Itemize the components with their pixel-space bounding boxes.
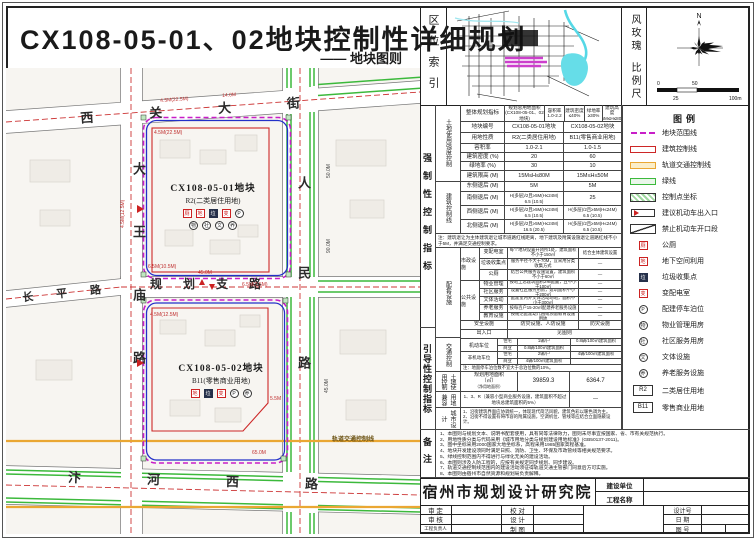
urban-design-group-label: 城市设计 (436, 408, 461, 430)
index-lake (561, 53, 588, 86)
wind-rose-scale-cell: N (647, 6, 750, 105)
table-row: 西侧退后 (M) H(多层)/2且≥5M(H≤24M) 6.5 (10.5) H… (461, 206, 622, 220)
cell: — (579, 281, 622, 289)
table-row: 文体活动 配建室内外文体活动场地，面积不小于300㎡ — (480, 297, 622, 305)
cell: 1、3、R（兼容小型商业服务设施，建筑面积不超过地块总建筑面积的5%） (461, 392, 570, 408)
table-row: 垃圾收集点 服务半径不大于70M，宜采用分类收集方式 — (480, 259, 622, 270)
property-management-icon: 物 (189, 221, 198, 230)
table-row: 用地性质 R2(二类居住用地) B11(零售商业用地) (461, 133, 622, 144)
parcel-01-label: CX108-05-01地块 R2(二类居住用地) 厕 地 垃 变 P 物 社 文… (148, 180, 278, 230)
dimension-label: 4.5M(12.5M) (150, 312, 178, 318)
cell: — (579, 259, 622, 270)
row-label: 整体规划指标 (461, 105, 505, 122)
row-label: 变配电室 (480, 248, 508, 259)
cell: H(多层)/2且≥5M(H≤24M) 6.5 (10.5) (505, 192, 564, 206)
table-row: 北侧退后 (M) H(多层)/2且≥5M(H≤24M) 16.5 (20.5) … (461, 220, 622, 234)
cell: CX108-05-01地块 (505, 122, 564, 133)
dimension-label: 6.5M(2.5M) (242, 282, 268, 288)
parcel-02-label: CX108-05-02地块 B11(零售商业用地) 地 垃 变 P 养 (156, 360, 286, 398)
zhitu-label: 制 图 (502, 525, 534, 534)
build-unit-label: 建设单位 (596, 478, 644, 492)
parcel-01-code: CX108-05-01地块 (148, 180, 278, 194)
roads (6, 68, 420, 534)
legend-item: 社社区服务用房 (630, 336, 704, 346)
design-no-value[interactable] (702, 506, 750, 515)
land-use-intensity-group-label: 土地使用强度控制 (436, 105, 461, 182)
garbage-collection-icon: 垃 (209, 209, 218, 218)
rose-petals (690, 36, 723, 55)
vehicle-entrance-icon (137, 359, 144, 367)
plan-map-svg (6, 68, 420, 534)
svg-text:25: 25 (673, 96, 679, 102)
cell: 5M (564, 182, 622, 192)
cell: 1.0-2.1 (505, 144, 564, 153)
row-label: 地块编号 (461, 122, 505, 133)
cell: 结合公共服务设施设置，建筑面积不小于60㎡ (508, 270, 579, 281)
parcel-02-use: B11(零售商业用地) (156, 376, 286, 386)
legend-item: B11零售商业用地 (630, 402, 704, 413)
table-row: 社区服务 设置社区服务用房，建筑面积不小于200㎡ — (480, 289, 622, 297)
row-label: 容积率 (461, 144, 505, 153)
cell: 20 (505, 153, 564, 162)
title-block-empty-cell (584, 506, 664, 534)
cell: 见图则 (508, 330, 622, 339)
vehicle-entrance-icon (137, 205, 144, 213)
guiding-indicators-label: 引导性控制指标 (420, 328, 436, 430)
legend-item: 地地下空间利用 (630, 256, 704, 266)
build-unit-value[interactable] (644, 478, 750, 492)
parking-icon: P (235, 209, 244, 218)
b11-land-icon: B11 (633, 402, 653, 413)
cell: 防灾设施、人防设施 (508, 321, 579, 330)
underground-space-icon: 地 (191, 389, 200, 398)
institute-name: 宿州市规划设计研究院 (420, 478, 596, 506)
wind-rose-label: 风玫瑰 (622, 10, 647, 56)
underground-space-icon: 地 (639, 257, 648, 266)
parcel-01-use: R2(二类居住用地) (148, 196, 278, 206)
parking-icon: P (230, 389, 239, 398)
legend-item: P配建停车泊位 (630, 304, 704, 314)
table-row: 养老服务 按每百户15-20㎡配建养老服务设施 — (480, 305, 622, 313)
rose-scale-label-cell: 风玫瑰 比例尺 (622, 6, 647, 105)
public-facilities-label: 公共设施 (461, 281, 480, 321)
parcel-02-code: CX108-05-02地块 (156, 360, 286, 374)
shenhe-value[interactable] (452, 515, 502, 524)
rail-transit-line-label: 轨道交通控制线 (332, 434, 374, 443)
public-toilet-icon: 厕 (183, 209, 192, 218)
no-opening-segment-icon (630, 224, 656, 234)
legend-item: 禁止机动车开口段 (630, 224, 718, 234)
dimension-label: 5.5M (270, 396, 281, 402)
table-row: 1、3、R（兼容小型商业服务设施，建筑面积不超过地块总建筑面积的5%） — (461, 392, 622, 408)
cell: H(多层)/2且≥5M(H≤24M) 6.5 (10.5) (564, 220, 622, 234)
date-label: 日 期 (664, 515, 702, 524)
location-index-label: 区位索引 (420, 6, 447, 105)
property-management-icon: 物 (639, 321, 648, 330)
fuzeren-value[interactable] (452, 525, 502, 534)
legend-item: 厕公厕 (630, 240, 676, 250)
cell: 1.0-1.5 (564, 144, 622, 153)
table-row: 规划用地面积 （㎡）（净用地面积） 39859.3 6364.7 (461, 372, 622, 392)
planning-sheet: CX108-05-01、02地块控制性详细规划 —— 地块图则 (0, 0, 756, 540)
table-row: 南侧退后 (M) H(多层)/2且≥5M(H≤24M) 6.5 (10.5) 2… (461, 192, 622, 206)
table-row: 1、沿街建筑界面应协调统一，体现现代简洁风貌，建筑色彩以暖色调为主。2、沿街不得… (461, 408, 622, 430)
cell: 按地上总建筑面积2‰配置，且不小于100㎡ (508, 281, 579, 289)
parking-note: 注：地面停车泊位数不宜大于总泊位数的10%。 (461, 365, 622, 372)
land-compatibility-group-label: 用地兼容 (436, 392, 461, 408)
r2-land-icon: R2 (633, 385, 653, 396)
row-label: 出入口 (461, 330, 508, 339)
location-index-svg (447, 6, 622, 105)
legend-panel: 图例 地块范围线 建筑控制线 轨道交通控制线 绿线 控制点坐标 建议机动车出入口… (622, 105, 750, 430)
legend-item: 建议机动车出入口 (630, 208, 718, 218)
elderly-care-icon: 养 (243, 389, 252, 398)
dimension-label: 65.0M (252, 450, 266, 456)
cell: 6364.7 (570, 372, 622, 392)
urban-design-cell: 1、沿街建筑界面应协调统一，体现现代简洁风貌，建筑色彩以暖色调为主。2、沿街不得… (461, 408, 622, 430)
table-note-row: 注：地面停车泊位数不宜大于总泊位数的10%。 (461, 365, 622, 372)
dimension-label: 6.5M(10.5M) (148, 264, 176, 270)
non-motor-parking-label: 非机动车位 (461, 352, 498, 365)
table-row: 容积率 1.0-2.1 1.0-1.5 (461, 144, 622, 153)
cell: 60 (564, 153, 622, 162)
jiaodui-value[interactable] (534, 506, 584, 515)
vehicle-entrance-icon (199, 279, 205, 285)
north-arrow-icon (697, 20, 701, 26)
fig-no-value[interactable] (702, 525, 726, 534)
legend-item: 地块范围线 (630, 128, 697, 138)
table-row: 建筑限高 (M) 15M≤H≤80M 15M≤H≤50M (461, 171, 622, 182)
elderly-care-icon: 养 (228, 221, 237, 230)
fuzeren-label: 工程负责人 (420, 525, 452, 534)
power-substation-icon: 变 (639, 289, 648, 298)
table-row: 绿地率 (%) 30 10 (461, 162, 622, 171)
cell: 建筑高度15M≤H≤80M (603, 105, 622, 122)
cell: 结合主体建筑设置 (579, 248, 622, 259)
cell: 建筑密度≤40% (565, 105, 585, 122)
legend-item: 养养老服务设施 (630, 368, 704, 378)
fig-no-label: 图 号 (664, 525, 702, 534)
cell: 15M≤H≤50M (564, 171, 622, 182)
legend-item: 文文体设施 (630, 352, 690, 362)
svg-text:50: 50 (692, 81, 698, 87)
parcel-01-icon-row-2: 物 社 文 养 (148, 221, 278, 230)
cell: 15M≤H≤80M (505, 171, 564, 182)
row-label: 建筑密度 (%) (461, 153, 505, 162)
legend-item: 变变配电室 (630, 288, 690, 298)
remarks-panel: 1、本图则与规划文本、说明书配套使用，具有同等法律效力，图则未尽事宜按国家、省、… (436, 430, 750, 478)
shending-value[interactable] (452, 506, 502, 515)
row-label: 建筑限高 (M) (461, 171, 505, 182)
wind-rose-svg: N (647, 6, 750, 105)
culture-sports-icon: 文 (639, 353, 648, 362)
date-value[interactable] (702, 515, 750, 524)
sheji-value[interactable] (534, 515, 584, 524)
index-plan-area (505, 58, 547, 66)
cell: R2(二类居住用地) (505, 133, 564, 144)
cell: 服务半径不大于70M，宜采用分类收集方式 (508, 259, 579, 270)
cell: 5M (505, 182, 564, 192)
cell: — (579, 289, 622, 297)
cell: 按每百户15-20㎡配建养老服务设施 (508, 305, 579, 313)
cell: 配建室内外文体活动场地，面积不小于300㎡ (508, 297, 579, 305)
table-row: 建筑密度 (%) 20 60 (461, 153, 622, 162)
community-service-icon: 社 (202, 221, 211, 230)
zhitu-value[interactable] (534, 525, 584, 534)
community-service-icon: 社 (639, 337, 648, 346)
fig-no-value-2[interactable] (726, 525, 750, 534)
table-row: 教育设施 按规范配建幼儿园或预留教育设施用地 — (480, 313, 622, 321)
svg-text:0: 0 (657, 81, 660, 87)
parcel-01-icon-row-1: 厕 地 垃 变 P (148, 209, 278, 218)
municipal-facilities-label: 市政设施 (461, 248, 480, 281)
street-label-renmin-road: 人民路 (294, 176, 313, 446)
legend-item: 垃垃圾收集点 (630, 272, 697, 282)
row-label: 社区服务 (480, 289, 508, 297)
garbage-collection-icon: 垃 (204, 389, 213, 398)
building-control-line-icon (630, 146, 656, 153)
control-point-icon (630, 193, 656, 202)
row-label: 北侧退后 (M) (461, 220, 505, 234)
table-row: 变配电室 每个地块设置开闭所1处，建筑面积不小于150㎡ 结合主体建筑设置 (480, 248, 622, 259)
title-block-top-border (420, 478, 750, 479)
cell: H(多层)/2且≥5M(H≤24M) 16.5 (20.5) (505, 220, 564, 234)
shenhe-label: 审 核 (420, 515, 452, 524)
green-line-icon (630, 178, 656, 185)
title-block: 宿州市规划设计研究院 建设单位 工程名称 审 定 校 对 审 核 设 计 工程负… (420, 478, 750, 534)
land-use-control-group-label: 土地使用控制 (436, 372, 461, 392)
sheji-label: 设 计 (502, 515, 534, 524)
wind-rose: N (677, 13, 723, 66)
title-band: CX108-05-01、02地块控制性详细规划 —— 地块图则 (6, 6, 420, 68)
cell: B11(零售商业用地) (564, 133, 622, 144)
legend-item: 轨道交通控制线 (630, 160, 711, 170)
dimension-label: 50.0M (326, 164, 332, 178)
index-stream (455, 18, 519, 23)
scale-bar: 0 50 25 100m (657, 81, 742, 102)
dimension-label: 90.0M (326, 239, 332, 253)
table-row: 公厕 结合公共服务设施设置，建筑面积不小于60㎡ — (480, 270, 622, 281)
dimension-label: 4.5M(22.5M) (154, 130, 182, 136)
location-index-map (447, 6, 622, 105)
cell: 每个地块设置开闭所1处，建筑面积不小于150㎡ (508, 248, 579, 259)
cell: 30 (505, 162, 564, 171)
table-row: 整体规划指标 规划总用地面积(CX108-05-01、02地块) 容积率1.0-… (461, 105, 622, 122)
cell: — (579, 313, 622, 321)
row-label: 绿地率 (%) (461, 162, 505, 171)
legend-title: 图例 (622, 112, 750, 125)
building-control-line-group-label: 建筑控制线 (436, 182, 461, 234)
cell: — (570, 392, 622, 408)
rail-transit-line-icon (630, 162, 656, 169)
row-label: 南侧退后 (M) (461, 192, 505, 206)
legend-item: 物物业管理用房 (630, 320, 704, 330)
dimension-label: 45.0M (198, 270, 212, 276)
cell: 10 (564, 162, 622, 171)
mandatory-indicators-label: 强制性控制指标 (420, 105, 436, 328)
remark-line: 8、本图则由宿州市自然资源和规划局负责解释。 (440, 472, 746, 478)
dimension-label: 14.0M (222, 92, 236, 99)
dimension-label: 45.0M (324, 379, 330, 393)
plan-map: 西关大街 人民路 大王庙路 规划支路 汴河西路 长平路 轨道交通控制线 CX10… (6, 68, 420, 534)
culture-sports-icon: 文 (215, 221, 224, 230)
scale-bar-label: 比例尺 (622, 58, 647, 104)
row-label: 垃圾收集点 (480, 259, 508, 270)
power-substation-icon: 变 (217, 389, 226, 398)
cell: 防灾设施 (579, 321, 622, 330)
page-subtitle: —— 地块图则 (320, 48, 402, 67)
row-label: 公厕 (480, 270, 508, 281)
cell: — (579, 305, 622, 313)
legend-item: 控制点坐标 (630, 192, 697, 202)
row-label: 东侧退后 (M) (461, 182, 505, 192)
cell: H(多层)/2且≥5M(H≤24M) 6.5 (10.5) (564, 206, 622, 220)
index-dense-area (502, 30, 538, 46)
row-label: 物业管理 (480, 281, 508, 289)
legend-item: R2二类居住用地 (630, 385, 704, 396)
cell: 25 (564, 192, 622, 206)
row-label: 养老服务 (480, 305, 508, 313)
cell: H(多层)/2且≥5M(H≤24M) 6.5 (10.5) (505, 206, 564, 220)
table-row: 物业管理 按地上总建筑面积2‰配置，且不小于100㎡ — (480, 281, 622, 289)
garbage-collection-icon: 垃 (639, 273, 648, 282)
street-label-dawangmiao-road: 大王庙路 (129, 162, 148, 414)
row-label: 规划用地面积 （㎡）（净用地面积） (461, 372, 518, 392)
table-note-row: 注：建筑退让为主体建筑退让城市道路红线距离，地下建筑及附属设施退让道路红线不小于… (436, 234, 622, 248)
cell: — (579, 270, 622, 281)
setback-note: 注：建筑退让为主体建筑退让城市道路红线距离，地下建筑及附属设施退让道路红线不小于… (436, 234, 622, 248)
cell: CX108-05-02地块 (564, 122, 622, 133)
row-label: 用地性质 (461, 133, 505, 144)
supporting-facilities-group-label: 配套设施 (436, 248, 461, 338)
elderly-care-icon: 养 (639, 369, 648, 378)
public-toilet-icon: 厕 (639, 241, 648, 250)
project-name-value[interactable] (644, 492, 750, 506)
motor-parking-label: 机动车位 (461, 339, 498, 352)
project-name-label: 工程名称 (596, 492, 644, 506)
north-label: N (696, 13, 701, 20)
cell: 按规范配建幼儿园或预留教育设施用地 (508, 313, 579, 321)
legend-item: 绿线 (630, 176, 676, 186)
parcel-boundary-line-icon (631, 132, 655, 134)
table-row: 出入口 见图则 (461, 330, 622, 339)
parcel-02-icon-row: 地 垃 变 P 养 (156, 389, 286, 398)
power-substation-icon: 变 (222, 209, 231, 218)
dimension-label: 4.5M(12.5M) (120, 200, 126, 228)
legend-left-border (622, 105, 623, 430)
cell: 规划总用地面积(CX108-05-01、02地块) (505, 105, 545, 122)
table-row: 东侧退后 (M) 5M 5M (461, 182, 622, 192)
svg-text:100m: 100m (729, 96, 742, 102)
row-label: 西侧退后 (M) (461, 206, 505, 220)
remarks-label: 备注 (420, 430, 436, 478)
traffic-control-group-label: 交通控制 (436, 338, 461, 372)
table-row: 安全设施 防灾设施、人防设施 防灾设施 (461, 321, 622, 330)
table-row: 地块编号 CX108-05-01地块 CX108-05-02地块 (461, 122, 622, 133)
cell: 39859.3 (518, 372, 570, 392)
design-no-label: 设计号 (664, 506, 702, 515)
parking-icon: P (639, 305, 648, 314)
cell: 容积率1.0-2.2 (545, 105, 565, 122)
vehicle-entrance-legend-icon (631, 209, 655, 217)
cell: 绿地率≥30% (585, 105, 603, 122)
cell: — (579, 297, 622, 305)
underground-space-icon: 地 (196, 209, 205, 218)
row-label: 教育设施 (480, 313, 508, 321)
vehicle-entrance-icon (209, 284, 215, 290)
cell: 设置社区服务用房，建筑面积不小于200㎡ (508, 289, 579, 297)
row-label: 文体活动 (480, 297, 508, 305)
legend-item: 建筑控制线 (630, 144, 697, 154)
row-label: 安全设施 (461, 321, 508, 330)
